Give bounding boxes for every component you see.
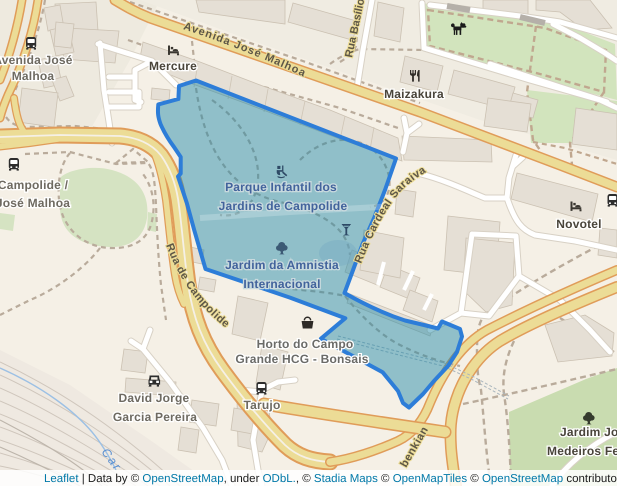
svg-text:Avenida José: Avenida José [0, 53, 73, 67]
svg-text:Jardim da Amnistia: Jardim da Amnistia [225, 258, 339, 272]
svg-text:Malhoa: Malhoa [12, 69, 55, 83]
svg-text:Internacional: Internacional [243, 277, 320, 291]
svg-text:José Malhoa: José Malhoa [0, 196, 70, 210]
svg-text:Maizakura: Maizakura [384, 87, 444, 101]
svg-text:Novotel: Novotel [556, 217, 601, 231]
svg-text:David Jorge: David Jorge [119, 391, 190, 405]
svg-text:Mercure: Mercure [149, 59, 197, 73]
svg-text:Grande HCG - Bonsais: Grande HCG - Bonsais [235, 352, 368, 366]
svg-text:Jardim José M: Jardim José M [560, 425, 617, 439]
svg-text:Garcia Pereira: Garcia Pereira [113, 410, 197, 424]
svg-text:Campolide /: Campolide / [0, 178, 69, 192]
svg-text:Jardins de Campolide: Jardins de Campolide [219, 199, 348, 213]
svg-text:Parque Infantil dos: Parque Infantil dos [225, 180, 337, 194]
svg-text:Tarujo: Tarujo [244, 398, 281, 412]
svg-text:Leaflet | Data by © OpenStreet: Leaflet | Data by © OpenStreetMap, under… [44, 473, 617, 485]
svg-text:Horto do Campo: Horto do Campo [257, 337, 354, 351]
svg-text:Medeiros Ferreira: Medeiros Ferreira [547, 444, 617, 458]
